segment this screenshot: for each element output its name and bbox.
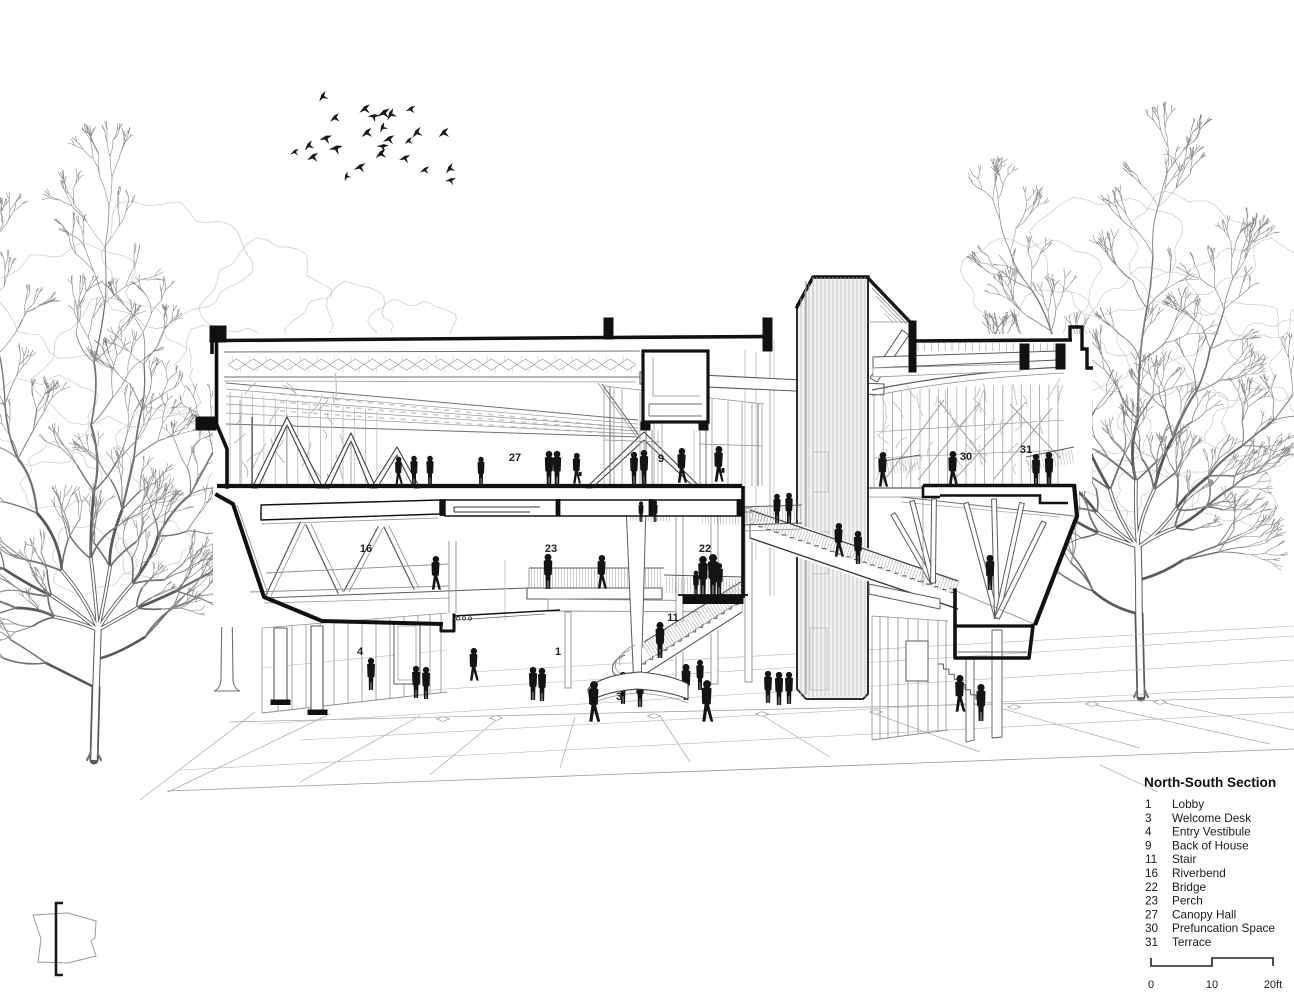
- svg-text:22: 22: [699, 543, 711, 555]
- svg-text:4: 4: [357, 646, 364, 658]
- svg-text:Prefuncation Space: Prefuncation Space: [1172, 921, 1275, 935]
- svg-text:3: 3: [616, 691, 622, 703]
- svg-text:10: 10: [1206, 979, 1218, 991]
- svg-text:Entry Vestibule: Entry Vestibule: [1172, 825, 1251, 839]
- svg-text:North-South Section: North-South Section: [1144, 775, 1276, 790]
- svg-text:31: 31: [1145, 935, 1158, 949]
- svg-text:11: 11: [1145, 852, 1157, 866]
- svg-text:30: 30: [960, 451, 972, 463]
- svg-text:23: 23: [1145, 894, 1159, 908]
- svg-text:Perch: Perch: [1172, 894, 1203, 908]
- svg-text:16: 16: [360, 543, 372, 555]
- svg-text:22: 22: [1145, 880, 1158, 894]
- svg-text:Back of House: Back of House: [1172, 838, 1249, 852]
- svg-text:30: 30: [1145, 921, 1159, 935]
- svg-text:16: 16: [1145, 866, 1159, 880]
- svg-text:4: 4: [1145, 825, 1152, 839]
- svg-text:Canopy Hall: Canopy Hall: [1172, 907, 1236, 921]
- svg-text:Bridge: Bridge: [1172, 880, 1207, 894]
- svg-text:9: 9: [658, 453, 664, 465]
- svg-text:11: 11: [667, 612, 679, 624]
- svg-text:20ft: 20ft: [1264, 979, 1282, 991]
- svg-text:Welcome Desk: Welcome Desk: [1172, 811, 1251, 825]
- svg-text:Riverbend: Riverbend: [1172, 866, 1226, 880]
- svg-text:0: 0: [1148, 979, 1154, 991]
- svg-text:Terrace: Terrace: [1172, 935, 1212, 949]
- svg-text:Stair: Stair: [1172, 852, 1196, 866]
- svg-text:31: 31: [1020, 444, 1032, 456]
- svg-text:9: 9: [1145, 838, 1152, 852]
- svg-text:Lobby: Lobby: [1172, 797, 1204, 811]
- svg-text:3: 3: [1145, 811, 1152, 825]
- svg-text:1: 1: [555, 646, 561, 658]
- svg-text:27: 27: [1145, 907, 1158, 921]
- svg-text:27: 27: [509, 452, 521, 464]
- svg-text:1: 1: [1145, 797, 1152, 811]
- svg-text:23: 23: [545, 543, 557, 555]
